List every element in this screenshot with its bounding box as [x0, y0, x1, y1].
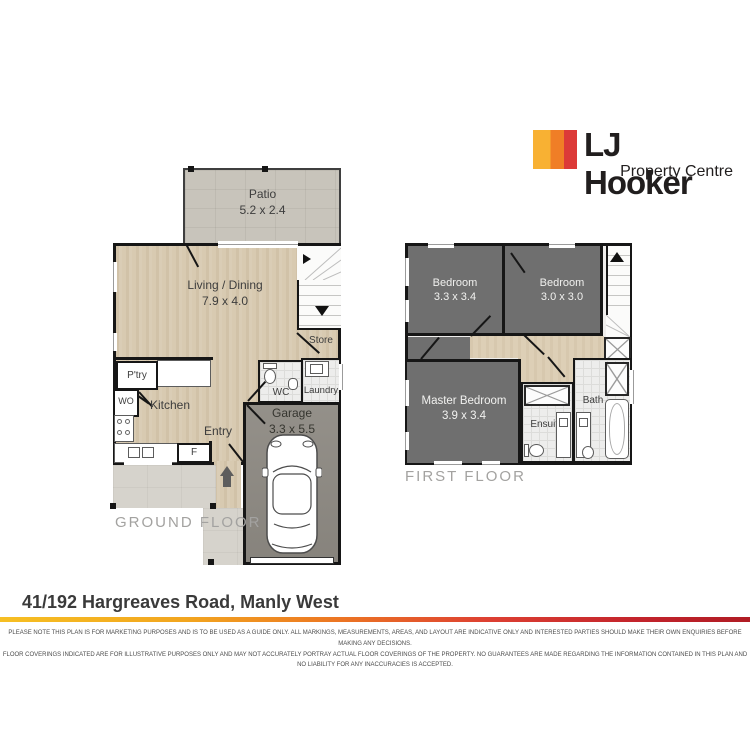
- patio-post: [188, 166, 194, 172]
- car-icon: [262, 432, 322, 556]
- ensuite-wardrobe: [524, 385, 570, 406]
- patio-post: [262, 166, 268, 172]
- laundry-trough-basin: [310, 364, 323, 374]
- ff-window: [482, 461, 500, 468]
- brand-tagline: Property Centre: [583, 163, 733, 181]
- fridge-side-wall: [209, 441, 212, 465]
- brand-gradient-divider: [0, 617, 750, 622]
- ff-window: [549, 241, 575, 248]
- kitchen-sink: [128, 447, 140, 458]
- front-path: [113, 465, 216, 508]
- cooktop-burner: [117, 419, 122, 424]
- laundry-label: Laundry: [302, 385, 340, 397]
- fridge-label: F: [186, 446, 202, 459]
- ff-stairs-winder: [606, 315, 630, 337]
- ensuite-basin: [559, 418, 568, 427]
- ff-window: [434, 461, 462, 468]
- logo-square-icon: [533, 130, 577, 169]
- pantry-label: P'try: [119, 369, 155, 382]
- living-window: [110, 333, 117, 351]
- ff-window: [630, 370, 637, 404]
- bathtub-inner: [609, 403, 625, 455]
- ff-window: [402, 380, 409, 406]
- floorplan-page: LJ Hooker Property Centre Patio 5.2 x 2.…: [0, 0, 750, 750]
- property-address: 41/192 Hargreaves Road, Manly West: [22, 592, 339, 613]
- patio-slider-window: [218, 241, 298, 248]
- entry-label: Entry: [196, 424, 240, 440]
- ff-window: [402, 432, 409, 450]
- ff-window: [402, 300, 409, 322]
- gf-stairs-down-arrow-icon: [315, 306, 329, 316]
- ff-window: [428, 241, 454, 248]
- bath-basin: [579, 418, 588, 427]
- porch-post: [208, 559, 214, 565]
- gf-stairs-arrow-icon: [303, 254, 311, 264]
- ensuite-toilet-tank: [524, 444, 529, 457]
- kitchen-label: Kitchen: [140, 398, 200, 414]
- cooktop-burner: [125, 419, 130, 424]
- bedroom-2-label: Bedroom 3.3 x 3.4: [415, 276, 495, 305]
- bath-linen: [605, 362, 629, 396]
- lj-hooker-logo: LJ Hooker Property Centre: [533, 126, 733, 188]
- porch-post: [210, 503, 216, 509]
- living-window: [110, 262, 117, 292]
- disclaimer-line-1: PLEASE NOTE THIS PLAN IS FOR MARKETING P…: [0, 628, 750, 650]
- bedroom-3-label: Bedroom 3.0 x 3.0: [522, 276, 602, 305]
- bath-toilet-bowl: [582, 446, 594, 459]
- disclaimer-line-2: FLOOR COVERINGS INDICATED ARE FOR ILLUST…: [0, 650, 750, 672]
- first-floor-title: FIRST FLOOR: [405, 468, 526, 485]
- master-nook: [408, 337, 470, 359]
- kitchen-sink: [142, 447, 154, 458]
- kitchen-island-bench: [157, 360, 211, 387]
- ff-hallway-ext: [518, 358, 573, 382]
- laundry-window: [339, 364, 346, 390]
- cooktop-burner: [125, 430, 130, 435]
- wc-label: WC: [268, 386, 294, 399]
- master-bedroom-label: Master Bedroom 3.9 x 3.4: [412, 394, 516, 424]
- ensuite-toilet-bowl: [529, 444, 544, 457]
- living-dining-label: Living / Dining 7.9 x 4.0: [160, 278, 290, 309]
- garage-door: [250, 557, 334, 564]
- patio-label: Patio 5.2 x 2.4: [215, 187, 310, 218]
- disclaimer-text: PLEASE NOTE THIS PLAN IS FOR MARKETING P…: [0, 628, 750, 671]
- entry-arrow-icon: [219, 466, 235, 488]
- ff-window: [402, 258, 409, 286]
- ground-floor-title: GROUND FLOOR: [115, 514, 262, 531]
- porch-post: [110, 503, 116, 509]
- wall-oven-label: WO: [114, 396, 138, 408]
- ff-stairs-up-arrow-icon: [610, 252, 624, 262]
- cooktop-burner: [117, 430, 122, 435]
